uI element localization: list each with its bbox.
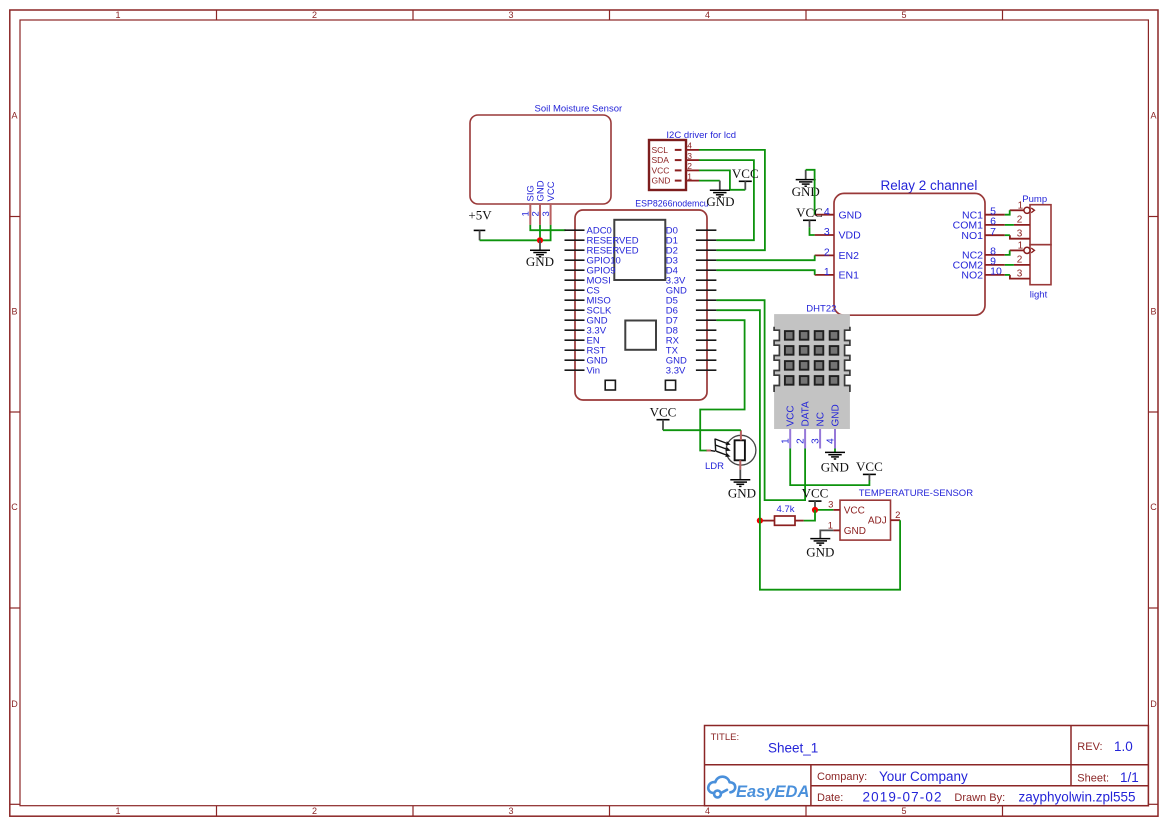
svg-text:EN2: EN2 [839, 250, 860, 262]
svg-text:DATA: DATA [801, 401, 812, 427]
svg-text:4: 4 [825, 438, 836, 444]
svg-text:A: A [11, 110, 17, 120]
svg-text:VCC: VCC [786, 405, 797, 426]
svg-text:Date:: Date: [817, 792, 843, 804]
svg-text:TEMPERATURE-SENSOR: TEMPERATURE-SENSOR [859, 488, 974, 499]
svg-text:1/1: 1/1 [1120, 770, 1139, 785]
svg-text:3: 3 [1017, 268, 1023, 279]
svg-text:VCC: VCC [802, 486, 829, 501]
svg-text:4: 4 [824, 206, 830, 218]
svg-text:DHT22: DHT22 [806, 304, 836, 315]
svg-text:5: 5 [901, 10, 906, 20]
svg-text:light: light [1030, 290, 1048, 301]
svg-text:3: 3 [508, 10, 513, 20]
svg-text:4.7k: 4.7k [777, 504, 795, 515]
svg-text:3: 3 [811, 438, 822, 444]
svg-text:1: 1 [824, 266, 830, 278]
svg-text:A: A [1150, 110, 1156, 120]
svg-text:Drawn By:: Drawn By: [954, 792, 1005, 804]
svg-text:3: 3 [824, 226, 830, 238]
svg-text:GND: GND [821, 460, 849, 475]
svg-text:GND: GND [806, 545, 834, 560]
svg-text:Relay 2 channel: Relay 2 channel [881, 178, 978, 193]
svg-text:Sheet_1: Sheet_1 [768, 741, 818, 756]
svg-text:SCL: SCL [652, 145, 669, 155]
svg-text:2: 2 [824, 247, 830, 259]
svg-text:zayphyolwin.zpl555: zayphyolwin.zpl555 [1019, 789, 1136, 804]
svg-text:5: 5 [901, 806, 906, 816]
svg-text:GND: GND [526, 254, 554, 269]
svg-text:2: 2 [1017, 254, 1023, 265]
svg-text:Vin: Vin [587, 366, 601, 377]
svg-text:3: 3 [1017, 228, 1023, 239]
svg-text:D: D [1150, 699, 1157, 709]
svg-text:GND: GND [830, 404, 841, 426]
svg-text:VCC: VCC [650, 404, 677, 419]
svg-text:NC: NC [816, 412, 827, 426]
svg-text:1: 1 [1018, 240, 1024, 251]
svg-text:+5V: +5V [468, 208, 492, 223]
svg-text:GND: GND [792, 184, 820, 199]
svg-text:10: 10 [990, 266, 1002, 278]
svg-text:Your Company: Your Company [879, 769, 968, 784]
svg-text:Sheet:: Sheet: [1077, 773, 1109, 785]
svg-text:2019-07-02: 2019-07-02 [863, 789, 943, 804]
svg-text:1: 1 [1018, 200, 1024, 211]
svg-text:1: 1 [115, 806, 120, 816]
svg-text:B: B [11, 306, 17, 316]
svg-text:VCC: VCC [844, 505, 865, 516]
svg-text:NO2: NO2 [961, 270, 983, 282]
svg-text:2: 2 [312, 806, 317, 816]
svg-text:4: 4 [705, 806, 710, 816]
svg-text:EN1: EN1 [839, 270, 860, 282]
svg-text:VCC: VCC [796, 205, 823, 220]
svg-text:7: 7 [990, 226, 996, 238]
svg-text:Pump: Pump [1022, 194, 1047, 205]
svg-text:VDD: VDD [839, 230, 862, 242]
svg-text:4: 4 [705, 10, 710, 20]
svg-text:Company:: Company: [817, 771, 867, 783]
svg-text:LDR: LDR [705, 461, 724, 472]
svg-text:REV:: REV: [1077, 741, 1102, 753]
svg-text:3: 3 [508, 806, 513, 816]
svg-text:VCC: VCC [652, 165, 670, 175]
svg-text:2: 2 [530, 211, 541, 216]
svg-text:ESP8266nodemcu: ESP8266nodemcu [635, 199, 708, 209]
svg-text:1: 1 [115, 10, 120, 20]
svg-text:Soil Moisture Sensor: Soil Moisture Sensor [535, 104, 623, 115]
svg-text:ADJ: ADJ [868, 516, 887, 527]
svg-text:2: 2 [796, 438, 807, 444]
svg-text:1.0: 1.0 [1114, 739, 1133, 754]
svg-text:C: C [1150, 502, 1157, 512]
svg-text:VCC: VCC [546, 181, 557, 201]
svg-text:GND: GND [535, 180, 546, 201]
svg-text:2: 2 [1017, 214, 1023, 225]
svg-text:GND: GND [844, 526, 866, 537]
svg-text:3: 3 [828, 500, 833, 511]
svg-text:2: 2 [312, 10, 317, 20]
svg-text:D: D [11, 699, 18, 709]
svg-text:C: C [11, 502, 18, 512]
svg-text:2: 2 [895, 510, 900, 521]
svg-text:B: B [1150, 306, 1156, 316]
svg-text:GND: GND [839, 209, 863, 221]
svg-text:GND: GND [728, 486, 756, 501]
svg-text:VCC: VCC [732, 166, 759, 181]
svg-text:3.3V: 3.3V [666, 366, 686, 377]
svg-text:TITLE:: TITLE: [711, 732, 740, 743]
svg-text:EasyEDA: EasyEDA [736, 783, 809, 801]
svg-text:3: 3 [541, 211, 552, 216]
svg-text:GND: GND [652, 176, 671, 186]
svg-text:GND: GND [706, 194, 734, 209]
svg-text:1: 1 [781, 438, 792, 444]
svg-text:VCC: VCC [856, 459, 883, 474]
svg-text:NO1: NO1 [961, 230, 983, 242]
svg-text:SDA: SDA [652, 155, 670, 165]
